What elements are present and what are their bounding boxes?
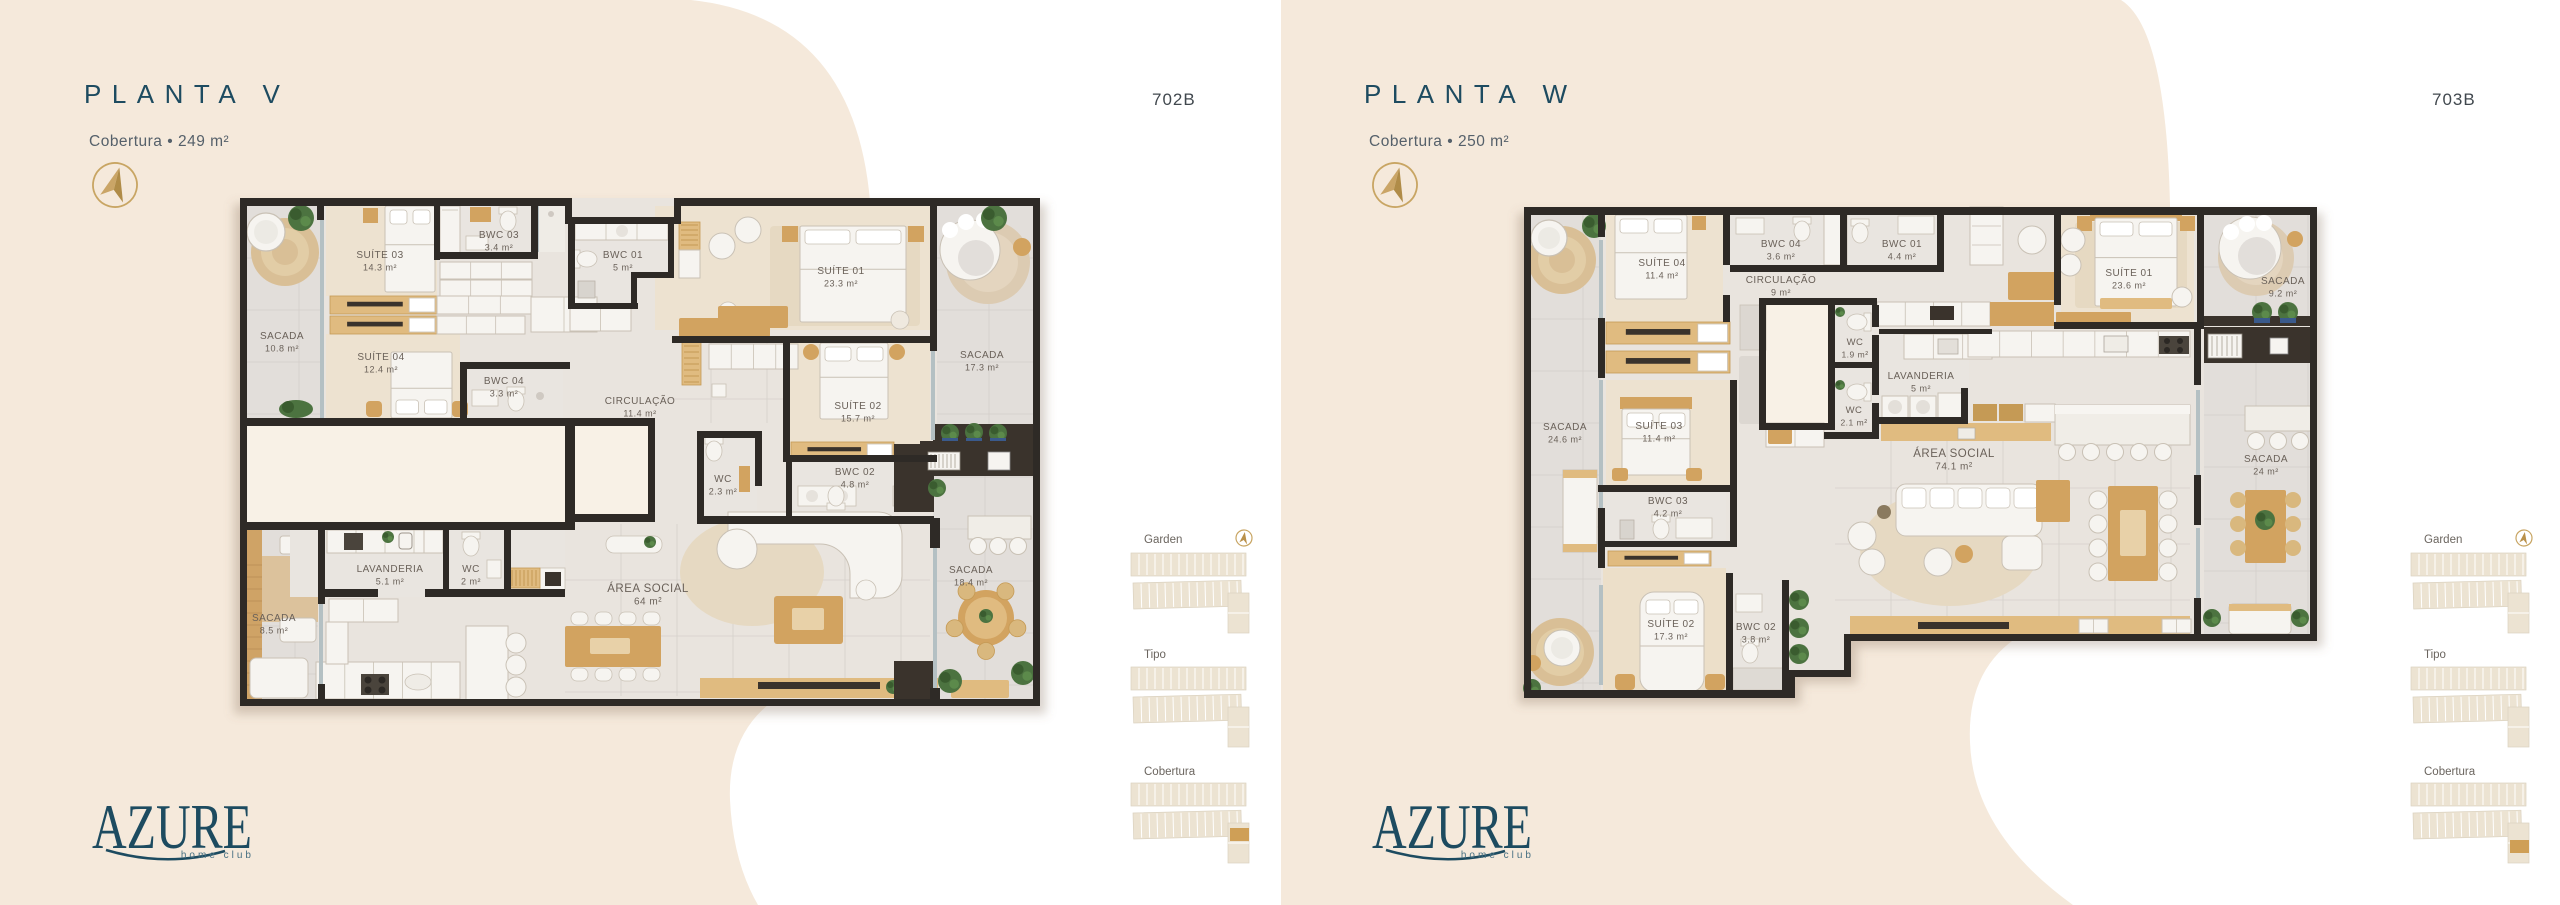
- svg-text:SACADA: SACADA: [2244, 454, 2288, 465]
- svg-text:WC: WC: [1846, 405, 1863, 416]
- svg-text:home club: home club: [181, 850, 254, 861]
- svg-text:LAVANDERIA: LAVANDERIA: [1888, 371, 1955, 382]
- svg-text:11.4 m²: 11.4 m²: [1645, 271, 1678, 281]
- svg-text:Tipo: Tipo: [1144, 649, 1166, 661]
- svg-text:SUÍTE 01: SUÍTE 01: [2105, 266, 2152, 279]
- svg-text:Cobertura • 249 m²: Cobertura • 249 m²: [89, 133, 229, 150]
- svg-text:PLANTA V: PLANTA V: [84, 79, 290, 109]
- svg-text:SUÍTE 04: SUÍTE 04: [357, 350, 404, 363]
- svg-text:24 m²: 24 m²: [2253, 467, 2279, 477]
- svg-text:11.4 m²: 11.4 m²: [623, 409, 656, 419]
- svg-text:Garden: Garden: [1144, 534, 1182, 546]
- svg-text:SACADA: SACADA: [1543, 422, 1587, 433]
- svg-text:SACADA: SACADA: [260, 331, 304, 342]
- svg-text:9.2 m²: 9.2 m²: [2269, 289, 2298, 299]
- svg-text:SACADA: SACADA: [960, 350, 1004, 361]
- svg-text:SUÍTE 04: SUÍTE 04: [1638, 256, 1685, 269]
- svg-text:SUÍTE 02: SUÍTE 02: [1647, 617, 1694, 630]
- svg-text:SACADA: SACADA: [949, 565, 993, 576]
- svg-text:Tipo: Tipo: [2424, 649, 2446, 661]
- svg-text:74.1 m²: 74.1 m²: [1935, 462, 1973, 473]
- svg-text:BWC 03: BWC 03: [479, 230, 519, 241]
- svg-text:2.3 m²: 2.3 m²: [709, 487, 738, 497]
- svg-text:10.8 m²: 10.8 m²: [265, 344, 299, 354]
- svg-text:12.4 m²: 12.4 m²: [364, 365, 398, 375]
- svg-text:3.6 m²: 3.6 m²: [1767, 252, 1796, 262]
- svg-text:18.4 m²: 18.4 m²: [954, 578, 988, 588]
- svg-text:Garden: Garden: [2424, 534, 2462, 546]
- svg-text:23.3 m²: 23.3 m²: [824, 279, 858, 289]
- svg-text:BWC 03: BWC 03: [1648, 496, 1688, 507]
- svg-text:WC: WC: [714, 474, 732, 485]
- svg-text:SUÍTE 01: SUÍTE 01: [817, 264, 864, 277]
- svg-text:BWC 01: BWC 01: [1882, 239, 1922, 250]
- svg-text:ÁREA SOCIAL: ÁREA SOCIAL: [1913, 447, 1995, 460]
- svg-text:14.3 m²: 14.3 m²: [363, 263, 397, 273]
- svg-text:PLANTA W: PLANTA W: [1364, 79, 1578, 109]
- svg-text:4.4 m²: 4.4 m²: [1888, 252, 1917, 262]
- svg-text:SUÍTE 02: SUÍTE 02: [834, 399, 881, 412]
- svg-text:ÁREA SOCIAL: ÁREA SOCIAL: [607, 582, 689, 595]
- svg-text:LAVANDERIA: LAVANDERIA: [357, 564, 424, 575]
- svg-text:WC: WC: [462, 564, 480, 575]
- svg-text:4.8 m²: 4.8 m²: [841, 480, 870, 490]
- svg-text:BWC 01: BWC 01: [603, 250, 643, 261]
- svg-text:SUÍTE 03: SUÍTE 03: [356, 248, 403, 261]
- svg-text:Cobertura • 250 m²: Cobertura • 250 m²: [1369, 133, 1509, 150]
- svg-text:4.2 m²: 4.2 m²: [1654, 509, 1683, 519]
- svg-text:BWC 02: BWC 02: [1736, 622, 1776, 633]
- svg-text:3.3 m²: 3.3 m²: [490, 389, 519, 399]
- svg-text:BWC 02: BWC 02: [835, 467, 875, 478]
- svg-text:702B: 702B: [1152, 90, 1196, 109]
- svg-text:24.6 m²: 24.6 m²: [1548, 435, 1582, 445]
- svg-text:Cobertura: Cobertura: [1144, 766, 1196, 778]
- svg-text:SACADA: SACADA: [2261, 276, 2305, 287]
- svg-text:3.4 m²: 3.4 m²: [485, 243, 514, 253]
- svg-text:WC: WC: [1847, 337, 1864, 348]
- svg-text:SUÍTE 03: SUÍTE 03: [1635, 419, 1682, 432]
- svg-text:3.8 m²: 3.8 m²: [1742, 635, 1771, 645]
- svg-text:home club: home club: [1461, 850, 1534, 861]
- svg-text:17.3 m²: 17.3 m²: [1654, 632, 1688, 642]
- svg-text:Cobertura: Cobertura: [2424, 766, 2476, 778]
- svg-text:2 m²: 2 m²: [461, 577, 481, 587]
- svg-text:CIRCULAÇÃO: CIRCULAÇÃO: [1746, 273, 1817, 286]
- svg-text:5 m²: 5 m²: [1911, 384, 1931, 394]
- svg-text:703B: 703B: [2432, 90, 2476, 109]
- svg-text:5 m²: 5 m²: [613, 263, 633, 273]
- svg-text:8.5 m²: 8.5 m²: [260, 626, 289, 636]
- svg-text:17.3 m²: 17.3 m²: [965, 363, 999, 373]
- svg-text:2.1 m²: 2.1 m²: [1840, 418, 1867, 428]
- svg-text:5.1 m²: 5.1 m²: [376, 577, 405, 587]
- svg-text:9 m²: 9 m²: [1771, 288, 1791, 298]
- svg-text:15.7 m²: 15.7 m²: [841, 414, 875, 424]
- svg-text:SACADA: SACADA: [252, 613, 296, 624]
- svg-text:11.4 m²: 11.4 m²: [1642, 434, 1675, 444]
- svg-text:64 m²: 64 m²: [634, 597, 662, 608]
- svg-text:BWC 04: BWC 04: [1761, 239, 1801, 250]
- svg-text:CIRCULAÇÃO: CIRCULAÇÃO: [605, 394, 676, 407]
- svg-text:23.6 m²: 23.6 m²: [2112, 281, 2146, 291]
- svg-text:1.9 m²: 1.9 m²: [1841, 350, 1868, 360]
- svg-text:BWC 04: BWC 04: [484, 376, 524, 387]
